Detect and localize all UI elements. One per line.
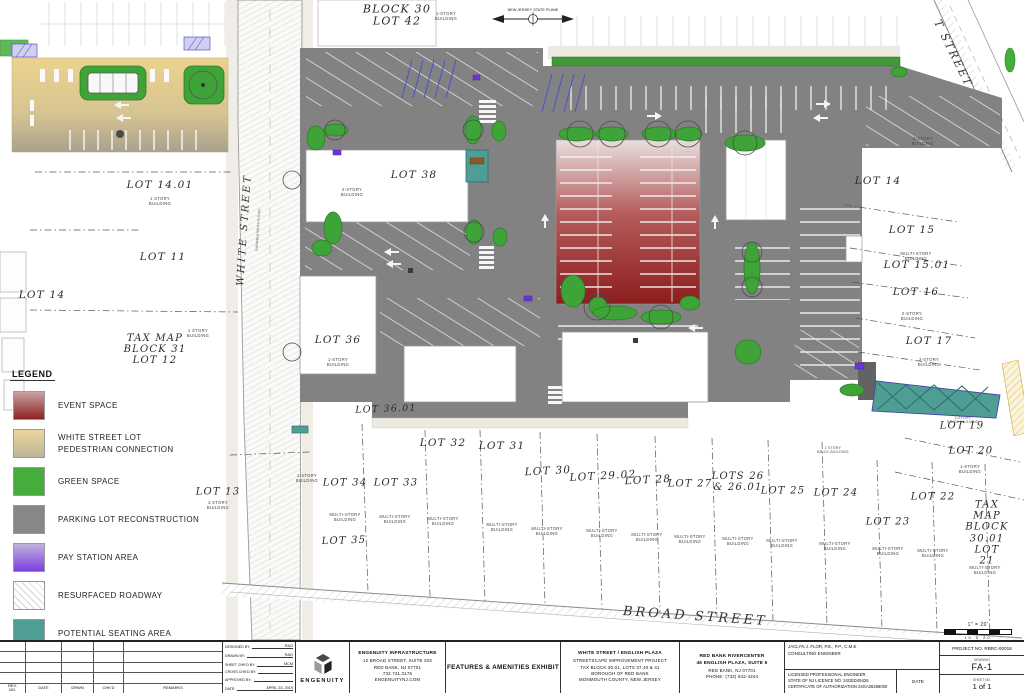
lot-label: LOT 16 bbox=[893, 287, 939, 299]
lot-label: LOT 14 bbox=[19, 290, 65, 302]
lot-label: BLOCK 30 LOT 42 bbox=[363, 4, 431, 29]
lot-label: LOT 31 bbox=[479, 441, 525, 453]
firm-block: ENGENUITY INFRASTRUCTURE 12 BROAD STREET… bbox=[350, 642, 446, 693]
lot-label: LOT 25 bbox=[761, 485, 806, 496]
project-line5: MONMOUTH COUNTY, NEW JERSEY bbox=[579, 677, 661, 683]
building-label: MULTI-STORY BUILDING bbox=[486, 522, 517, 533]
legend-label: POTENTIAL SEATING AREA bbox=[58, 628, 171, 640]
approval-value bbox=[254, 681, 293, 682]
approval-value: RAO bbox=[247, 653, 293, 658]
building-label: 1-STORY BUILDING bbox=[327, 357, 349, 368]
revision-table-headers: REV. NO.DATEDRWNCHK'DREMARKS bbox=[0, 684, 222, 693]
approval-value: RAO bbox=[252, 644, 293, 649]
building-label: MULTI-STORY BUILDING bbox=[900, 251, 931, 262]
legend-items: EVENT SPACEWHITE STREET LOTPEDESTRIAN CO… bbox=[8, 391, 218, 648]
approval-label: APPROVED BY: bbox=[225, 678, 252, 682]
lot-label: LOT 38 bbox=[391, 170, 437, 182]
lot-label: LOT 15.01 bbox=[884, 260, 951, 272]
client-phone: PHONE: (732) 842-4244 bbox=[706, 674, 758, 680]
building-label: 2 STORY BRICK BUILDING bbox=[817, 446, 849, 455]
lot-label: LOT 30 bbox=[524, 465, 571, 479]
broad-street-label: BROAD STREET bbox=[621, 604, 768, 629]
building-label: MULTI-STORY BUILDING bbox=[872, 546, 903, 557]
lot-label: LOT 35 bbox=[322, 535, 367, 548]
legend-swatch bbox=[13, 581, 45, 610]
legend-swatch bbox=[13, 429, 45, 458]
legend-swatch bbox=[13, 505, 45, 534]
building-label: MULTI-STORY BUILDING bbox=[427, 516, 458, 527]
legend-label: RESURFACED ROADWAY bbox=[58, 590, 163, 602]
lot-label: LOT 11 bbox=[140, 252, 186, 264]
engenuity-logo-icon bbox=[310, 652, 336, 677]
legend-swatch bbox=[13, 391, 45, 420]
building-label: MULTI-STORY BUILDING bbox=[531, 526, 562, 537]
building-label: 1-STORY BUILDING bbox=[296, 473, 318, 484]
logo-wordmark: ENGENUITY bbox=[300, 678, 344, 684]
approvals-block: DESIGNED BY:RAODRAWN BY:RAOSHEET CHK'D B… bbox=[223, 642, 296, 693]
building-label: 2-STORY BUILDING bbox=[341, 187, 363, 198]
lot-label: LOT 17 bbox=[906, 336, 952, 348]
building-label: MULTI-STORY BUILDING bbox=[631, 532, 662, 543]
rev-header: REMARKS bbox=[124, 684, 222, 693]
lot-label: LOT 15 bbox=[889, 225, 935, 237]
building-label: 2-STORY BUILDING bbox=[901, 311, 923, 322]
approval-label: CROSS CHK'D BY: bbox=[225, 670, 256, 674]
rev-header: DATE bbox=[26, 684, 62, 693]
client-address1: 46 ENGLISH PLAZA, SUITE 6 bbox=[696, 661, 767, 668]
logo-cell: ENGENUITY bbox=[296, 642, 350, 693]
approval-label: DATE: bbox=[225, 687, 235, 691]
rev-header: CHK'D bbox=[94, 684, 124, 693]
building-label: 1 STORY BUILDING bbox=[149, 196, 171, 207]
engineer-block: JACLYN J. FLOR, P.E., P.P., C.M.E CONSUL… bbox=[785, 642, 940, 693]
rev-header: REV. NO. bbox=[0, 684, 26, 693]
lot-label: LOT 34 bbox=[323, 477, 368, 488]
drawing-sheet: NEW JERSEY STATE PLANE WHITE STREET (VAR… bbox=[0, 0, 1024, 693]
building-label: MULTI-STORY BUILDING bbox=[917, 548, 948, 559]
lot-label: LOT 36.01 bbox=[355, 404, 417, 417]
north-label: NEW JERSEY STATE PLANE bbox=[508, 8, 559, 12]
lot-label: TAX MAP BLOCK 30.01 LOT 21 bbox=[965, 499, 1008, 566]
building-label: MULTI-STORY BUILDING bbox=[674, 534, 705, 545]
engineer-license3: CERTIFICATE OF AUTHORIZATION 24GA2826800… bbox=[788, 684, 893, 690]
lot-label: TAX MAP BLOCK 31 LOT 12 bbox=[124, 333, 187, 367]
scale-bar: 1" = 20' 10 0 20 bbox=[936, 622, 1020, 640]
client-block: RED BANK RIVERCENTER 46 ENGLISH PLAZA, S… bbox=[680, 642, 785, 693]
approval-row: DRAWN BY:RAO bbox=[225, 653, 293, 658]
legend-label: PARKING LOT RECONSTRUCTION bbox=[58, 514, 199, 526]
legend-title: LEGEND bbox=[10, 369, 55, 381]
building-label: MULTI-STORY BUILDING bbox=[379, 514, 410, 525]
engineer-date-label: DATE bbox=[896, 670, 939, 693]
lot-label: LOT 33 bbox=[374, 477, 419, 488]
legend-item: RESURFACED ROADWAY bbox=[8, 581, 218, 610]
lot-label: LOT 14.01 bbox=[127, 180, 194, 192]
approval-row: DATE:APRIL 23, 2019 bbox=[225, 686, 293, 691]
lot-label: LOT 20 bbox=[949, 445, 994, 456]
scale-ratio: 1" = 20' bbox=[936, 622, 1020, 628]
lot-label: LOTS 26 & 26.01 bbox=[712, 471, 765, 493]
engineer-title: CONSULTING ENGINEER bbox=[788, 651, 936, 658]
approval-label: DRAWN BY: bbox=[225, 654, 245, 658]
legend-item: EVENT SPACE bbox=[8, 391, 218, 420]
lot-label: LOT 36 bbox=[315, 335, 361, 347]
legend-item: WHITE STREET LOTPEDESTRIAN CONNECTION bbox=[8, 429, 218, 458]
pedestrian-connection bbox=[12, 58, 228, 152]
approval-value bbox=[258, 673, 293, 674]
building-label: MULTI-STORY BUILDING bbox=[969, 565, 1000, 576]
legend: LEGEND EVENT SPACEWHITE STREET LOTPEDEST… bbox=[8, 364, 218, 648]
lot-label: LOT 27 bbox=[668, 478, 713, 489]
engineer-name: JACLYN J. FLOR, P.E., P.P., C.M.E bbox=[788, 644, 936, 651]
building-label: 1-STORY BUILDING bbox=[435, 11, 457, 22]
building-label: 1-STORY BUILDING bbox=[959, 464, 981, 475]
firm-web: ENGENUITYNJ.COM bbox=[375, 677, 420, 683]
firm-name: ENGENUITY INFRASTRUCTURE bbox=[358, 651, 436, 658]
lot-label: LOT 24 bbox=[814, 487, 859, 498]
revision-table: REV. NO.DATEDRWNCHK'DREMARKS bbox=[0, 642, 223, 693]
project-number: PROJECT NO. RBRC-00018 bbox=[940, 642, 1024, 656]
lot-label: LOT 32 bbox=[420, 438, 466, 450]
building-label: 2-STORY BUILDING bbox=[918, 357, 940, 368]
drawing-number: FA-1 bbox=[971, 662, 992, 672]
legend-swatch bbox=[13, 543, 45, 572]
legend-item: PAY STATION AREA bbox=[8, 543, 218, 572]
approval-row: APPROVED BY: bbox=[225, 678, 293, 682]
sheet-info-block: PROJECT NO. RBRC-00018 DRAWING FA-1 SHEE… bbox=[940, 642, 1024, 693]
legend-label: GREEN SPACE bbox=[58, 476, 120, 488]
lot-label: LOT 28 bbox=[624, 474, 671, 488]
lot-label: LOT 14 bbox=[855, 176, 901, 188]
building-label: MULTI-STORY BUILDING bbox=[329, 512, 360, 523]
building-label: MULTI-STORY BUILDING bbox=[722, 536, 753, 547]
legend-item: GREEN SPACE bbox=[8, 467, 218, 496]
legend-label: EVENT SPACE bbox=[58, 400, 118, 412]
building-label: 2-STORY BRICK BUILDING bbox=[947, 416, 979, 425]
approval-row: SHEET CHK'D BY:MCM bbox=[225, 662, 293, 667]
legend-swatch bbox=[13, 467, 45, 496]
building-label: MULTI-STORY BUILDING bbox=[766, 538, 797, 549]
building-label: MULTI-STORY BUILDING bbox=[586, 528, 617, 539]
title-block: REV. NO.DATEDRWNCHK'DREMARKS DESIGNED BY… bbox=[0, 640, 1024, 693]
approval-value: MCM bbox=[257, 662, 293, 667]
project-line1: WHITE STREET / ENGLISH PLAZA bbox=[578, 651, 662, 658]
approval-row: CROSS CHK'D BY: bbox=[225, 670, 293, 674]
building-label: 2-STORY BUILDING bbox=[912, 136, 934, 147]
exhibit-title-cell: FEATURES & AMENITIES EXHIBIT bbox=[446, 642, 561, 693]
project-block: WHITE STREET / ENGLISH PLAZA STREETSCAPE… bbox=[561, 642, 680, 693]
building-label: MULTI-STORY BUILDING bbox=[819, 541, 850, 552]
lot-label: LOT 23 bbox=[866, 516, 911, 527]
sheet-number: 1 of 1 bbox=[973, 682, 992, 691]
approval-label: SHEET CHK'D BY: bbox=[225, 663, 255, 667]
site-plan: NEW JERSEY STATE PLANE WHITE STREET (VAR… bbox=[0, 0, 1024, 640]
legend-label: PAY STATION AREA bbox=[58, 552, 138, 564]
approval-label: DESIGNED BY: bbox=[225, 645, 250, 649]
legend-item: PARKING LOT RECONSTRUCTION bbox=[8, 505, 218, 534]
lot-label: LOT 22 bbox=[911, 491, 956, 502]
approval-row: DESIGNED BY:RAO bbox=[225, 644, 293, 649]
legend-label: WHITE STREET LOTPEDESTRIAN CONNECTION bbox=[58, 432, 174, 456]
exhibit-title: FEATURES & AMENITIES EXHIBIT bbox=[447, 663, 559, 672]
rev-header: DRWN bbox=[62, 684, 94, 693]
building-label: 1 STORY BUILDING bbox=[187, 328, 209, 339]
approval-value: APRIL 23, 2019 bbox=[237, 686, 293, 691]
